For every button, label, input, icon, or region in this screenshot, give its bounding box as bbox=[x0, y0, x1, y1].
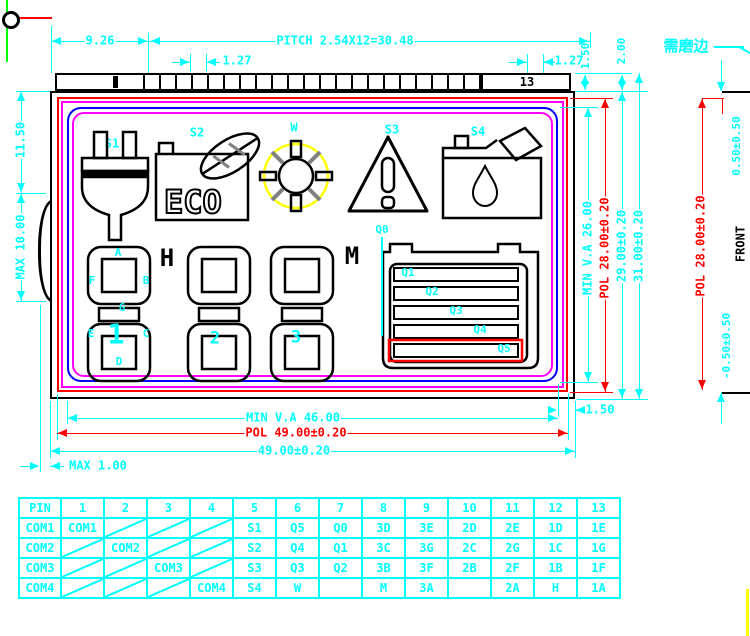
letter-m-segment: M bbox=[344, 243, 360, 269]
gauge-label-q5: Q5 bbox=[496, 343, 511, 355]
arrowhead bbox=[618, 81, 626, 90]
arrowhead bbox=[58, 429, 67, 437]
gauge-label-q0: Q0 bbox=[374, 224, 389, 236]
arrowhead bbox=[618, 92, 626, 101]
gauge-label-q4: Q4 bbox=[472, 324, 487, 336]
arrowhead bbox=[51, 447, 60, 455]
dim-strip-2-00: 2.00 bbox=[616, 37, 628, 66]
q0-leader-line bbox=[381, 237, 383, 336]
pin-cell bbox=[448, 578, 491, 598]
table-row-com3: COM3 COM3 S3 Q3 Q2 3B 3F 2B 2F 1B 1F bbox=[19, 558, 620, 578]
pin-cell: Q4 bbox=[276, 538, 319, 558]
arrowhead bbox=[565, 447, 574, 455]
side-dim-top: 0.50±0.50 bbox=[731, 115, 743, 177]
ext-line bbox=[16, 301, 46, 302]
pin-cell bbox=[61, 558, 104, 578]
pin-cell: S3 bbox=[233, 558, 276, 578]
pin-cell: 2D bbox=[448, 518, 491, 538]
arrowhead bbox=[698, 380, 706, 389]
arrowhead bbox=[548, 414, 557, 422]
eco-battery-icon: ECO bbox=[152, 128, 264, 224]
icon-label-w: W bbox=[289, 121, 298, 134]
segment-label-g: G bbox=[118, 302, 127, 314]
origin-circle-icon bbox=[2, 11, 20, 29]
pin-cell bbox=[61, 538, 104, 558]
arrowhead bbox=[17, 183, 25, 192]
pin-header-cell: 9 bbox=[405, 498, 448, 518]
digit2-value: 2 bbox=[209, 330, 221, 349]
pin-header-cell: 12 bbox=[534, 498, 577, 518]
pin-cell bbox=[190, 518, 233, 538]
pin-cell bbox=[319, 578, 362, 598]
glass-edge-line bbox=[722, 392, 750, 394]
digit1-value: 1 bbox=[107, 320, 126, 351]
arrowhead bbox=[717, 393, 725, 402]
pin-cell: 1C bbox=[534, 538, 577, 558]
pin-cell bbox=[190, 558, 233, 578]
arrowhead bbox=[581, 81, 589, 90]
pin-cell: S2 bbox=[233, 538, 276, 558]
gauge-label-q1: Q1 bbox=[400, 267, 415, 279]
y-axis-line bbox=[6, 0, 8, 62]
pin-header-cell: 5 bbox=[233, 498, 276, 518]
ext-line bbox=[40, 305, 41, 472]
pin-cell: 3E bbox=[405, 518, 448, 538]
pin-cell: 1B bbox=[534, 558, 577, 578]
arrowhead bbox=[601, 99, 609, 108]
gauge-bar-4 bbox=[394, 325, 518, 338]
row-label: COM3 bbox=[19, 558, 61, 578]
arrowhead bbox=[558, 429, 567, 437]
pin-cell: 3A bbox=[405, 578, 448, 598]
pin-header-cell: 13 bbox=[577, 498, 620, 518]
ext-line bbox=[527, 54, 528, 73]
seven-segment-digit-3 bbox=[268, 244, 336, 384]
arrowhead bbox=[52, 37, 61, 45]
dim-min-va-height: MIN V.A 26.00 bbox=[581, 200, 594, 296]
cad-drawing-canvas: 9.26 PITCH 2.54X12=30.48 1.27 1.27 1.50 … bbox=[0, 0, 750, 636]
arrowhead bbox=[517, 58, 526, 66]
leader-line bbox=[738, 46, 750, 54]
seven-segment-digit-2 bbox=[185, 244, 253, 384]
dim-pol-width: POL 49.00±0.20 bbox=[244, 426, 347, 439]
arrowhead bbox=[584, 372, 592, 381]
table-row-com2: COM2 COM2 S2 Q4 Q1 3C 3G 2C 2G 1C 1G bbox=[19, 538, 620, 558]
pin-divider bbox=[143, 75, 145, 89]
pin-cell: M bbox=[362, 578, 405, 598]
ext-line bbox=[560, 107, 598, 108]
pin-cell: COM4 bbox=[190, 578, 233, 598]
adjacent-drawing-edge bbox=[746, 589, 749, 636]
ext-line bbox=[560, 382, 598, 383]
segment-label-e: E bbox=[87, 328, 96, 340]
pin-cell bbox=[104, 578, 147, 598]
dim-pol-height: POL 28.00±0.20 bbox=[598, 196, 611, 299]
pin-divider bbox=[481, 75, 483, 89]
warning-triangle-icon bbox=[344, 132, 432, 218]
gauge-label-q3: Q3 bbox=[448, 305, 463, 317]
pin-cell: Q0 bbox=[319, 518, 362, 538]
pin-header-cell: PIN bbox=[19, 498, 61, 518]
pin-cell: 2C bbox=[448, 538, 491, 558]
front-label: FRONT bbox=[734, 225, 747, 263]
pin-cell: COM3 bbox=[147, 558, 190, 578]
pin-header-cell: 4 bbox=[190, 498, 233, 518]
pin-cell: Q3 bbox=[276, 558, 319, 578]
ext-line bbox=[575, 73, 632, 74]
arrowhead bbox=[618, 389, 626, 398]
pin-cell: 3B bbox=[362, 558, 405, 578]
pin-cell bbox=[147, 518, 190, 538]
plug-icon bbox=[76, 130, 154, 242]
ext-line bbox=[190, 54, 191, 71]
arrowhead bbox=[635, 74, 643, 83]
side-dim-bottom: -0.50±0.50 bbox=[721, 312, 733, 380]
ext-line bbox=[577, 399, 648, 400]
row-label: COM1 bbox=[19, 518, 61, 538]
arrowhead bbox=[30, 462, 39, 470]
arrowhead bbox=[17, 92, 25, 101]
pin-cell bbox=[61, 578, 104, 598]
arrowhead bbox=[635, 389, 643, 398]
dim-va-gap-1-50: 1.50 bbox=[585, 403, 616, 416]
arrowhead bbox=[180, 58, 189, 66]
pin-cell: Q1 bbox=[319, 538, 362, 558]
pin-cell: 3C bbox=[362, 538, 405, 558]
pin-assignment-table: PIN 1 2 3 4 5 6 7 8 9 10 11 12 13 COM1 C… bbox=[18, 497, 621, 599]
pin-cell: Q5 bbox=[276, 518, 319, 538]
pin-cell bbox=[104, 558, 147, 578]
arrowhead bbox=[717, 82, 725, 91]
pin-cell: COM2 bbox=[104, 538, 147, 558]
letter-h-segment: H bbox=[159, 245, 175, 271]
arrowhead bbox=[544, 58, 553, 66]
pin-cell bbox=[147, 538, 190, 558]
digit3-value: 3 bbox=[290, 329, 302, 348]
pin-cell: 1G bbox=[577, 538, 620, 558]
pin-cell bbox=[147, 578, 190, 598]
ext-line bbox=[568, 394, 569, 440]
arrowhead bbox=[17, 194, 25, 203]
pin-cell: 3G bbox=[405, 538, 448, 558]
segment-label-c: C bbox=[142, 328, 151, 340]
oil-battery-icon bbox=[438, 124, 546, 222]
pin-cell: 2E bbox=[491, 518, 534, 538]
pin-cell: 3F bbox=[405, 558, 448, 578]
gauge-label-q2: Q2 bbox=[424, 286, 439, 298]
pin-header-cell: 6 bbox=[276, 498, 319, 518]
pin-cell: 1F bbox=[577, 558, 620, 578]
pin-cell: 2B bbox=[448, 558, 491, 578]
pin-cell: 1A bbox=[577, 578, 620, 598]
table-header-row: PIN 1 2 3 4 5 6 7 8 9 10 11 12 13 bbox=[19, 498, 620, 518]
arrowhead bbox=[548, 406, 557, 414]
ext-line bbox=[148, 33, 149, 73]
pin-cell: 1E bbox=[577, 518, 620, 538]
dim-min-va-width: MIN V.A 46.00 bbox=[245, 411, 341, 424]
pin-cell bbox=[190, 538, 233, 558]
pin-cell: 1D bbox=[534, 518, 577, 538]
arrowhead bbox=[698, 99, 706, 108]
segment-label-b: B bbox=[142, 275, 151, 287]
grind-edge-note: 需磨边 bbox=[662, 38, 709, 55]
arrowhead bbox=[601, 382, 609, 391]
glass-edge-line bbox=[722, 91, 750, 93]
pin-header-cell: 8 bbox=[362, 498, 405, 518]
dim-glass-height: 29.00±0.20 bbox=[615, 209, 628, 283]
pin-cell: 2F bbox=[491, 558, 534, 578]
arrowhead bbox=[68, 414, 77, 422]
pin-13-label: 13 bbox=[487, 75, 567, 89]
pin-pad-dividers bbox=[159, 75, 481, 89]
segment-label-f: F bbox=[88, 275, 97, 287]
arrowhead bbox=[138, 37, 147, 45]
pin-header-cell: 10 bbox=[448, 498, 491, 518]
row-label: COM2 bbox=[19, 538, 61, 558]
dim-11-50: 11.50 bbox=[14, 121, 27, 159]
ext-line bbox=[558, 384, 559, 417]
table-row-com1: COM1 COM1 S1 Q5 Q0 3D 3E 2D 2E 1D 1E bbox=[19, 518, 620, 538]
pin-cell: W bbox=[276, 578, 319, 598]
pin-cell: 2A bbox=[491, 578, 534, 598]
pin-header-cell: 7 bbox=[319, 498, 362, 518]
arrowhead bbox=[17, 291, 25, 300]
arrowhead bbox=[151, 37, 160, 45]
sun-icon bbox=[255, 135, 337, 217]
row-label: COM4 bbox=[19, 578, 61, 598]
ext-line bbox=[570, 392, 613, 393]
pin-connector-strip: 13 bbox=[55, 73, 571, 91]
segment-label-d: D bbox=[115, 356, 124, 368]
table-row-com4: COM4 COM4 S4 W M 3A 2A H 1A bbox=[19, 578, 620, 598]
ext-line bbox=[722, 98, 723, 114]
pin-cell: S1 bbox=[233, 518, 276, 538]
pin-cell: H bbox=[534, 578, 577, 598]
pin-header-cell: 2 bbox=[104, 498, 147, 518]
pin-cell bbox=[104, 518, 147, 538]
dim-total-height: 31.00±0.20 bbox=[632, 209, 645, 283]
side-dim-pol: POL 28.00±0.20 bbox=[694, 194, 707, 297]
pin-cell: S4 bbox=[233, 578, 276, 598]
pin-header-cell: 11 bbox=[491, 498, 534, 518]
arrowhead bbox=[207, 58, 216, 66]
arrowhead bbox=[584, 108, 592, 117]
glass-side-bump bbox=[38, 200, 52, 302]
dim-max-1: MAX 1.00 bbox=[68, 459, 128, 472]
eco-text: ECO bbox=[164, 183, 222, 221]
dim-glass-width: 49.00±0.20 bbox=[257, 444, 331, 457]
ext-line bbox=[51, 26, 52, 73]
pin-1-tick bbox=[113, 76, 118, 88]
arrowhead bbox=[51, 462, 60, 470]
pin-header-cell: 1 bbox=[61, 498, 104, 518]
pin-cell: 3D bbox=[362, 518, 405, 538]
pin-cell: Q2 bbox=[319, 558, 362, 578]
segment-label-a: A bbox=[114, 247, 123, 259]
dim-strip-1-50: 1.50 bbox=[580, 42, 592, 71]
pin-header-cell: 3 bbox=[147, 498, 190, 518]
dim-max-10: MAX 10.00 bbox=[14, 213, 27, 280]
dim-pitch: PITCH 2.54X12=30.48 bbox=[275, 34, 414, 47]
pin-cell: COM1 bbox=[61, 518, 104, 538]
gauge-bar-2 bbox=[394, 287, 518, 300]
dim-9-26: 9.26 bbox=[85, 34, 116, 47]
pin-cell: 2G bbox=[491, 538, 534, 558]
dim-1-27-left: 1.27 bbox=[222, 54, 253, 67]
